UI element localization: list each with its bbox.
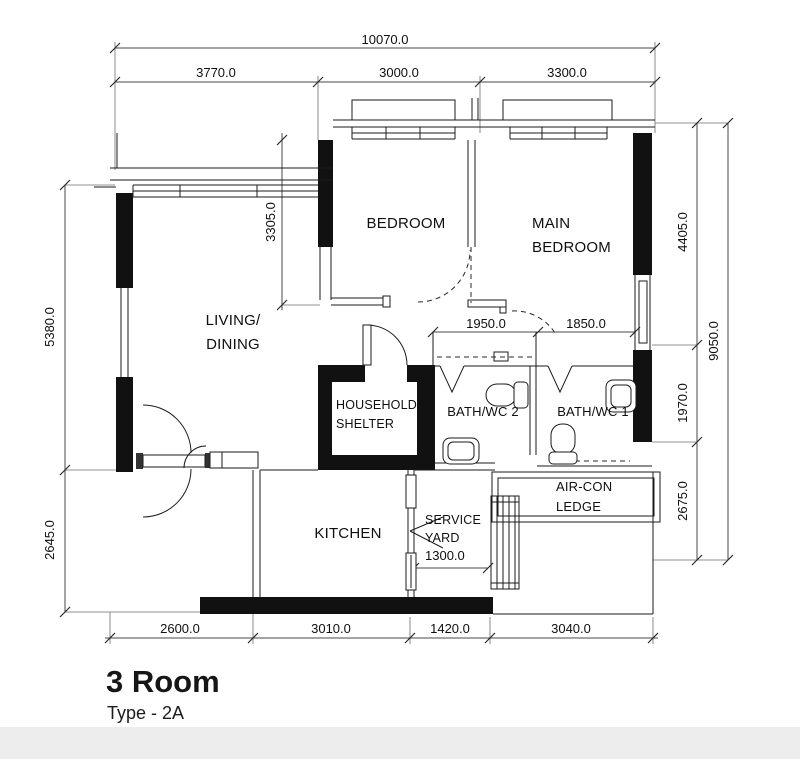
entrance-cabinet (210, 452, 258, 468)
shelter-door-swing (367, 325, 407, 365)
room-label-kitchen: KITCHEN (288, 525, 408, 542)
dimension-lines (65, 48, 728, 638)
fixtures (443, 380, 636, 464)
toilet-symbol-bath1 (549, 424, 577, 464)
room-label-bedroom: BEDROOM (356, 215, 456, 232)
dim-top-total: 10070.0 (335, 32, 435, 47)
dim-bottom-seg-1: 2600.0 (130, 621, 230, 636)
room-label-bath2: BATH/WC 2 (433, 404, 533, 419)
main-bedroom-window (639, 281, 647, 343)
dim-right-seg-3: 2675.0 (675, 451, 691, 551)
dim-bottom-seg-2: 3010.0 (281, 621, 381, 636)
dim-bottom-seg-3: 1420.0 (400, 621, 500, 636)
plan-title: 3 Room (106, 664, 220, 700)
drying-rack-railing (491, 496, 519, 589)
main-bedroom-bay-ledge (503, 100, 612, 120)
room-label-living-dining: LIVING/DINING (183, 309, 283, 357)
dim-top-seg-2: 3000.0 (349, 65, 449, 80)
dim-right-seg-2: 1970.0 (675, 353, 691, 453)
dim-right-seg-1: 4405.0 (675, 182, 691, 282)
plan-subtitle: Type - 2A (107, 703, 184, 724)
bedroom-bay-ledge (352, 100, 455, 120)
dim-bedroom-depth: 3305.0 (263, 172, 279, 272)
shelter-door-leaf (363, 325, 371, 365)
floor-plan-page: 10070.0 3770.0 3000.0 3300.0 5380.0 2645… (0, 0, 800, 759)
dim-left-seg-1: 5380.0 (42, 277, 58, 377)
dim-right-total: 9050.0 (706, 291, 722, 391)
dim-corridor-2: 1850.0 (536, 316, 636, 331)
dim-service-yard: 1300.0 (425, 548, 485, 563)
dim-top-seg-3: 3300.0 (517, 65, 617, 80)
dim-top-seg-1: 3770.0 (166, 65, 266, 80)
room-label-household-shelter: HOUSEHOLDSHELTER (336, 396, 424, 434)
entrance-door-swing-upper (143, 405, 191, 453)
room-label-main-bedroom: MAINBEDROOM (532, 212, 642, 260)
bedroom-door-swing (418, 250, 470, 302)
dim-bottom-seg-4: 3040.0 (521, 621, 621, 636)
bath1-folding-door (548, 366, 572, 392)
dim-corridor-1: 1950.0 (436, 316, 536, 331)
page-bottom-strip (0, 727, 800, 759)
doors-dashed (418, 247, 630, 461)
room-label-service-yard: SERVICEYARD (425, 512, 495, 547)
entrance-door-leaf (143, 455, 205, 467)
bath2-folding-door (440, 366, 464, 392)
room-label-bath1: BATH/WC 1 (541, 404, 645, 419)
room-label-aircon-ledge: AIR-CONLEDGE (556, 477, 646, 517)
sink-symbol-bath2 (443, 438, 479, 464)
dim-left-seg-2: 2645.0 (42, 490, 58, 590)
entrance-door-swing-lower (143, 469, 191, 517)
extension-lines (65, 42, 728, 644)
